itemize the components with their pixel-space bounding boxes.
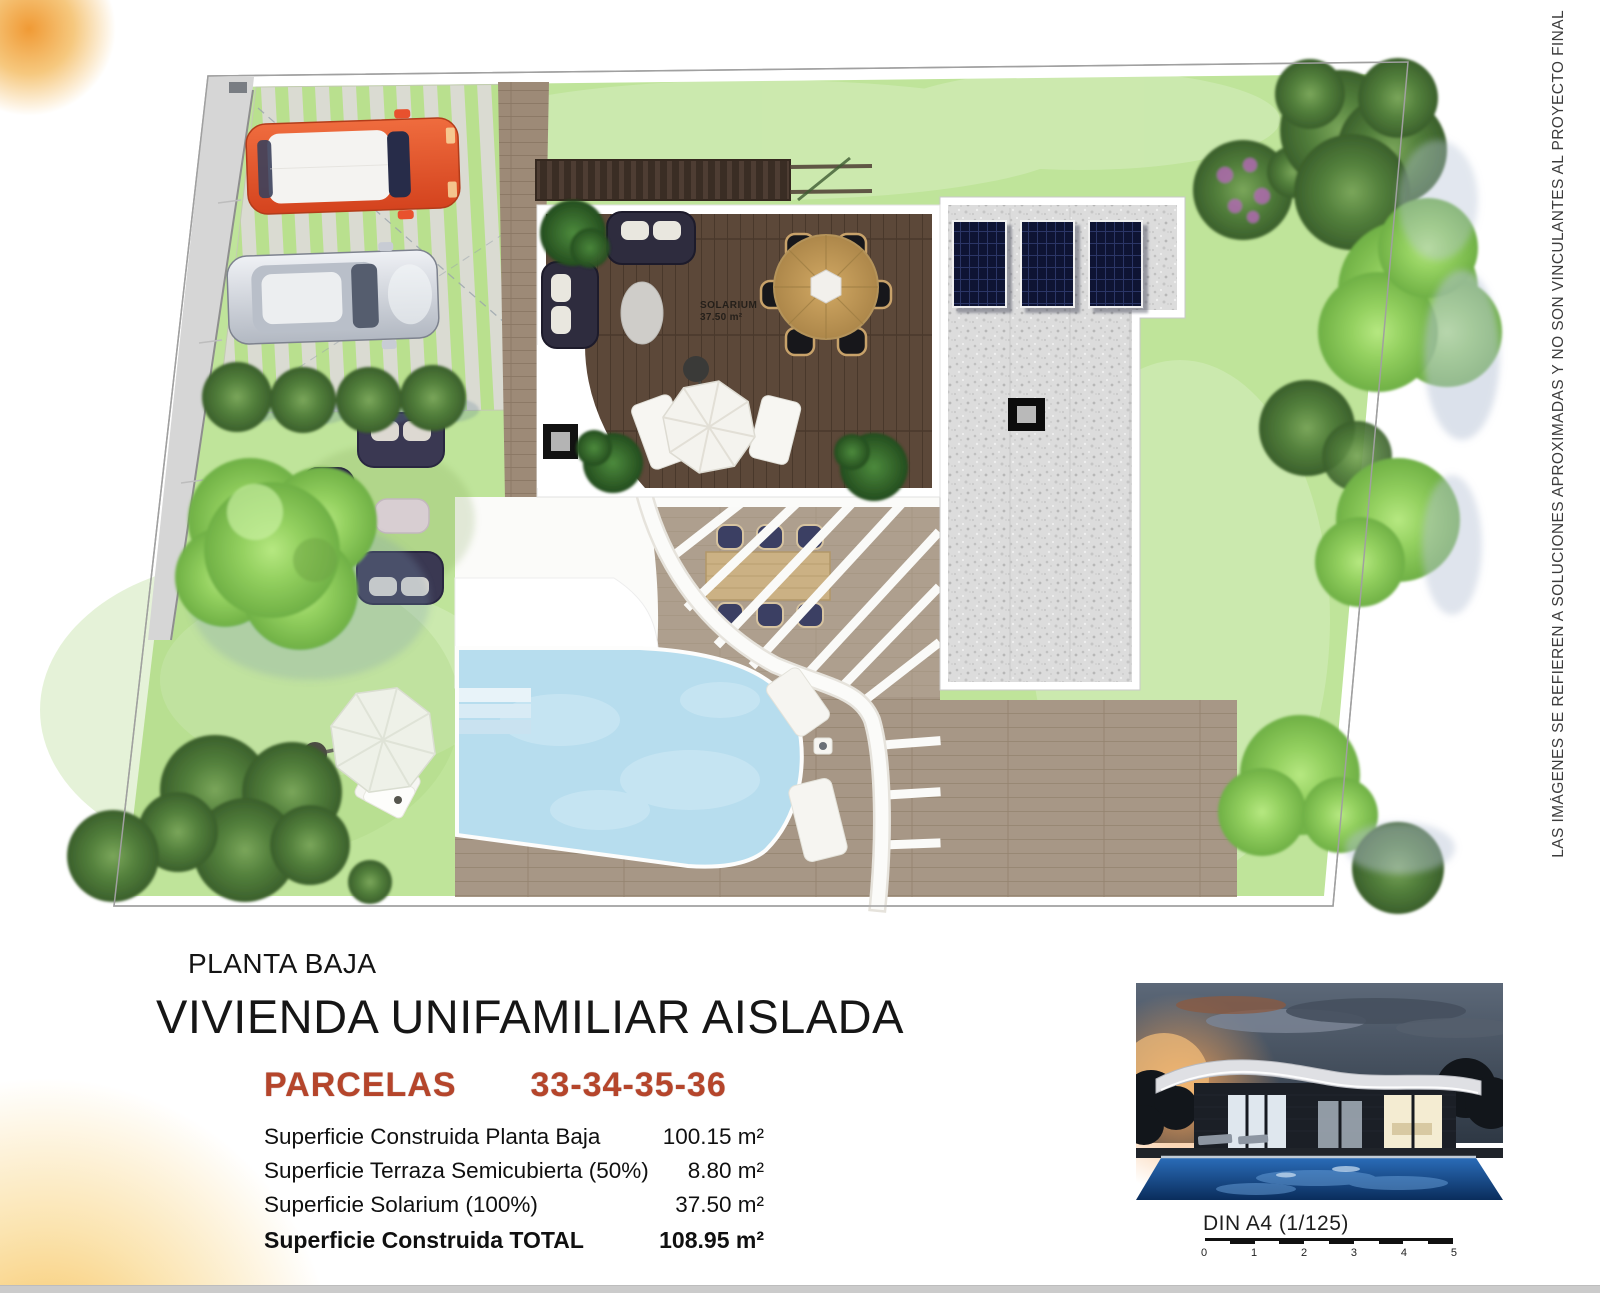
floor-label: PLANTA BAJA [188, 948, 377, 980]
area-total-label: Superficie Construida TOTAL [264, 1227, 584, 1254]
bottom-edge-bar [0, 1285, 1600, 1293]
scale-tick: 4 [1401, 1247, 1407, 1259]
scale-tick: 0 [1201, 1247, 1207, 1259]
area-value: 8.80 m² [688, 1158, 764, 1184]
area-table-row: Superficie Terraza Semicubierta (50%) 8.… [264, 1158, 764, 1184]
scale-tick: 1 [1251, 1247, 1257, 1259]
area-table-total-row: Superficie Construida TOTAL 108.95 m² [264, 1227, 764, 1254]
page-title: VIVIENDA UNIFAMILIAR AISLADA [156, 989, 904, 1044]
parcels-label: PARCELAS [264, 1066, 457, 1104]
area-label: Superficie Solarium (100%) [264, 1192, 538, 1218]
area-value: 100.15 m² [663, 1124, 764, 1150]
area-table-row: Superficie Solarium (100%) 37.50 m² [264, 1192, 764, 1218]
solarium-deck: SOLARIUM 37.50 m² [537, 200, 940, 501]
deck-sofa-left [542, 262, 598, 348]
parcels-numbers: 33-34-35-36 [531, 1066, 727, 1104]
scale-bar [1205, 1238, 1453, 1246]
plan-sheet: SOLARIUM 37.50 m² [0, 0, 1600, 1293]
side-disclaimer-text: LAS IMÁGENES SE REFIEREN A SOLUCIONES AP… [1550, 10, 1568, 858]
solarium-label: SOLARIUM [700, 300, 757, 311]
pool-steps [459, 688, 531, 734]
scale-tick: 2 [1301, 1247, 1307, 1259]
area-table-row: Superficie Construida Planta Baja 100.15… [264, 1124, 764, 1150]
skylight [1008, 398, 1045, 431]
area-label: Superficie Construida Planta Baja [264, 1124, 600, 1150]
side-disclaimer: LAS IMÁGENES SE REFIEREN A SOLUCIONES AP… [1542, 34, 1576, 834]
scale-tick: 5 [1451, 1247, 1457, 1259]
scale-format-label: DIN A4 (1/125) [1203, 1212, 1349, 1236]
scale-tick: 3 [1351, 1247, 1357, 1259]
deck-sofa-top [607, 212, 695, 264]
scale-tick-labels: 0 1 2 3 4 5 [1201, 1247, 1457, 1259]
orange-car [245, 107, 461, 224]
area-value: 37.50 m² [675, 1192, 764, 1218]
pool [457, 648, 802, 867]
silver-car [226, 240, 440, 354]
solar-panels [952, 220, 1148, 313]
villa-night-render [1136, 983, 1503, 1200]
deck-planter [543, 424, 578, 459]
parcels-line: PARCELAS33-34-35-36 [264, 1066, 727, 1105]
deck-rug [621, 282, 663, 344]
solarium-area-label: 37.50 m² [700, 312, 743, 323]
area-label: Superficie Terraza Semicubierta (50%) [264, 1158, 649, 1184]
area-total-value: 108.95 m² [659, 1227, 764, 1254]
